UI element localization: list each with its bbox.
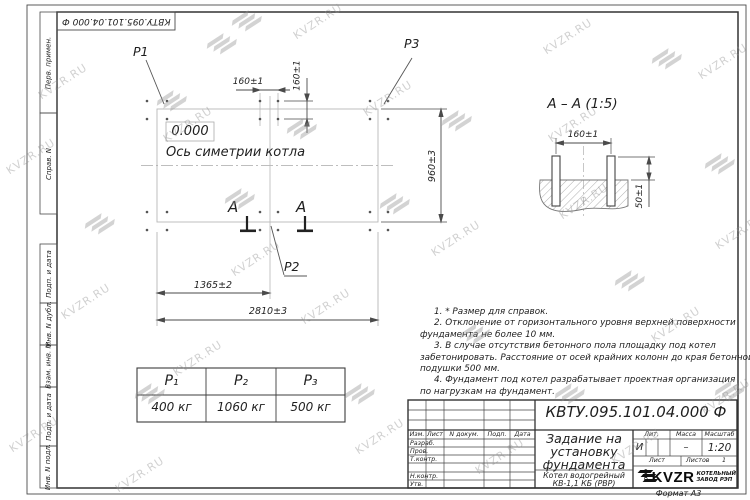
logo-name: KVZR bbox=[652, 469, 695, 486]
row-prov: Пров. bbox=[410, 449, 428, 455]
dim-stud-height: 50±1 bbox=[636, 175, 648, 217]
col-izm: Изм. bbox=[408, 432, 426, 438]
load-table-header-p3: P₃ bbox=[276, 374, 345, 388]
company-logo: ООО KVZR КОТЕЛЬНЫЙ ЗАВОД РЭП bbox=[636, 468, 736, 486]
title-block-designation: КВТУ.095.101.04.000 Ф bbox=[537, 405, 735, 420]
mass-value: – bbox=[670, 443, 702, 453]
dim-foundation-length: 2810±3 bbox=[238, 307, 298, 317]
col-n-dokum: N докум. bbox=[444, 432, 484, 438]
zero-level-mark: 0.000 bbox=[168, 125, 212, 138]
row-utv: Утв. bbox=[410, 482, 423, 488]
note-line: 4. Фундамент под котел разрабатывает про… bbox=[420, 375, 744, 386]
side-item-podp-data-1: Подп. и дата bbox=[40, 244, 57, 303]
note-line: 1. * Размер для справок. bbox=[420, 307, 744, 318]
note-line: 2. Отклонение от горизонтального уровня … bbox=[420, 318, 744, 329]
format-label: Формат А3 bbox=[620, 490, 737, 498]
drawing-sheet: КВТУ.095.101.04.000 Ф Перв. примен. Спра… bbox=[0, 0, 750, 500]
sheets-value: 1 bbox=[722, 458, 726, 464]
lit-value: И bbox=[633, 443, 646, 453]
scale-label: Масштаб bbox=[702, 432, 737, 438]
dim-foundation-width: 960±3 bbox=[428, 144, 440, 188]
sheets-label: Листов bbox=[686, 458, 710, 464]
section-cut-marks bbox=[240, 216, 313, 231]
anchor-stud-left bbox=[552, 156, 560, 206]
col-data: Дата bbox=[510, 432, 535, 438]
dim-bolt-vertical: 160±1 bbox=[294, 55, 305, 97]
col-list: Лист bbox=[426, 432, 444, 438]
section-letter-left: А bbox=[228, 200, 238, 215]
lit-label: Лит. bbox=[633, 432, 670, 438]
load-point-p1-label: P1 bbox=[133, 46, 149, 59]
kvzr-emblem-icon bbox=[636, 469, 642, 486]
logo-ooo: ООО bbox=[644, 474, 649, 480]
side-item-perv-primen: Перв. примен. bbox=[40, 12, 57, 113]
mass-label: Масса bbox=[670, 432, 702, 438]
boiler-axis-label: Ось симетрии котла bbox=[166, 146, 305, 159]
load-table-value-p1: 400 кг bbox=[137, 401, 206, 413]
note-line: по нагрузкам на фундамент. bbox=[420, 387, 744, 398]
load-table-header-p2: P₂ bbox=[206, 374, 276, 388]
doc-title-line: фундамента bbox=[535, 459, 633, 472]
side-item-vzam-inv: Взам. инв. N bbox=[40, 345, 57, 387]
row-razrab: Разраб. bbox=[410, 441, 435, 447]
corner-stamp: КВТУ.095.101.04.000 Ф bbox=[57, 12, 175, 30]
dim-p2-offset: 1365±2 bbox=[183, 281, 243, 291]
section-view-title: А – А (1:5) bbox=[520, 98, 645, 112]
load-table-value-p3: 500 кг bbox=[276, 401, 345, 413]
row-n-kontr: Н.контр. bbox=[410, 474, 438, 480]
row-t-kontr: Т.контр. bbox=[410, 457, 437, 463]
dim-bolt-horizontal: 160±1 bbox=[228, 78, 268, 87]
col-podp: Подп. bbox=[484, 432, 510, 438]
sheet-label: Лист bbox=[633, 458, 681, 464]
drawing-canvas bbox=[0, 0, 750, 500]
note-line: фундамента не более 10 мм. bbox=[420, 330, 744, 341]
scale-value: 1:20 bbox=[702, 443, 737, 454]
note-line: забетонировать. Расстояние от осей крайн… bbox=[420, 353, 744, 364]
anchor-stud-right bbox=[607, 156, 615, 206]
corner-designation: КВТУ.095.101.04.000 Ф bbox=[62, 16, 171, 26]
section-letter-right: А bbox=[296, 200, 306, 215]
note-line: 3. В случае отсутствия бетонного пола пл… bbox=[420, 341, 744, 352]
notes-block: 1. * Размер для справок. 2. Отклонение о… bbox=[420, 307, 744, 398]
dim-stud-spacing: 160±1 bbox=[553, 131, 613, 140]
load-point-p2-label: P2 bbox=[284, 261, 300, 274]
load-table-value-p2: 1060 кг bbox=[206, 401, 276, 413]
side-item-podp-data-2: Подп. и дата bbox=[40, 387, 57, 446]
product-name-line: КВ-1,1 КБ (РВР) bbox=[535, 480, 633, 488]
side-item-inv-podl: Инв. N подл. bbox=[40, 446, 57, 488]
logo-subtitle: КОТЕЛЬНЫЙ ЗАВОД РЭП bbox=[696, 471, 736, 483]
load-table-header-p1: P₁ bbox=[137, 374, 206, 388]
side-item-sprav-n: Справ. N bbox=[40, 113, 57, 214]
side-item-inv-dubl: Инв. N дубл. bbox=[40, 303, 57, 345]
load-point-p3-label: P3 bbox=[404, 38, 420, 51]
note-line: подушки 500 мм. bbox=[420, 364, 744, 375]
